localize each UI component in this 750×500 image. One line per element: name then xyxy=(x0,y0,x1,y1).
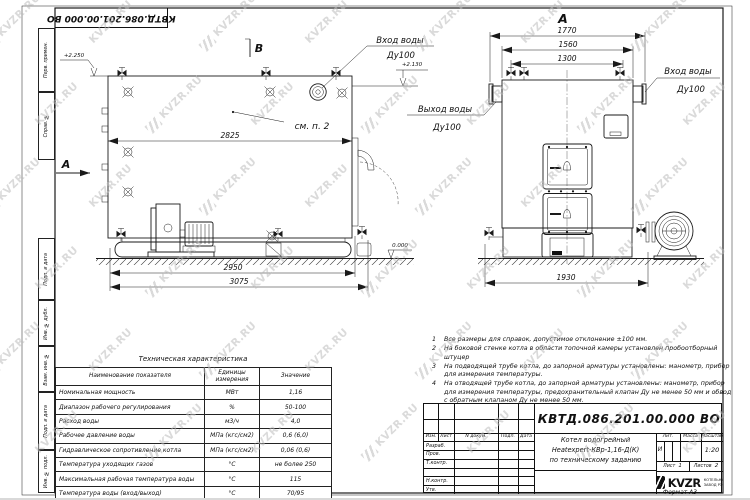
margin-label: Перв. примен. xyxy=(44,42,49,78)
sheet-label: Лист xyxy=(663,464,675,469)
side-dimensions xyxy=(56,39,434,291)
title-block: Изм. Лист N докум. Подп. Дата Разраб. Пр… xyxy=(423,403,722,493)
water-outlet-dn: Ду100 xyxy=(432,123,461,133)
elevation-zero-label: 0.000 xyxy=(392,243,408,249)
kvzr-logo-subtitle: КОТЕЛЬНЫЙ ЗАВОД РЭП xyxy=(704,478,723,487)
table-row: Гидравлическое сопротивление котлаМПа (к… xyxy=(56,443,332,457)
logo-sub-line2: ЗАВОД РЭП xyxy=(704,483,723,487)
water-inlet-label-front: Вход воды xyxy=(664,67,712,77)
margin-box-podp-data-1: Подп. и дата xyxy=(38,238,55,300)
view-b-arrow-label: В xyxy=(255,42,263,55)
kvzr-logo-icon xyxy=(656,476,665,489)
row-value: 1,16 xyxy=(260,386,332,400)
tech-header-name: Наименование показателя xyxy=(56,368,205,386)
see-item-note: см. п. 2 xyxy=(295,122,330,132)
table-row: Температура уходящих газов°Сне более 250 xyxy=(56,457,332,471)
row-name: Расход воды xyxy=(56,414,205,428)
row-value: 4,0 xyxy=(260,414,332,428)
sheets-label: Листов xyxy=(694,464,712,469)
row-name: Рабочее давление воды xyxy=(56,429,205,443)
margin-label: Подп. и дата xyxy=(44,253,49,286)
notes-list: 1Все размеры для справок, допустимое отк… xyxy=(432,336,732,406)
doc-number: КВТД.086.201.00.000 ВО xyxy=(534,404,723,433)
drawing-sheet: +2.250 +2.130 0.000 А В А Вход воды Ду10… xyxy=(0,0,750,500)
col-podp: Подп. xyxy=(498,434,518,439)
dim-3075: 3075 xyxy=(229,277,248,286)
note-number: 4 xyxy=(432,380,444,405)
fan-front xyxy=(654,212,696,260)
logo-sub-line1: КОТЕЛЬНЫЙ xyxy=(704,478,723,482)
note-item: 2На боковой стенке котла в области топоч… xyxy=(432,345,732,362)
water-outlet-label: Выход воды xyxy=(418,105,472,115)
dim-1770: 1770 xyxy=(557,26,576,35)
front-view xyxy=(478,68,704,266)
product-name-line2: Heatexpert-КВр-1,16-Д(К) xyxy=(535,446,656,456)
scale-label: Масштаб xyxy=(701,434,723,439)
sheets-value: 2 xyxy=(715,463,719,469)
row-unit: МПа (кгс/см2) xyxy=(205,443,260,457)
row-name: Диапазон рабочего регулирования xyxy=(56,400,205,414)
table-row: Максимальная рабочая температура воды°С1… xyxy=(56,472,332,486)
top-doc-number-text: КВТД.086.201.00.000 ВО xyxy=(47,13,176,23)
elevation-top-label: +2.250 xyxy=(64,53,85,59)
margin-box-inv-podl: Инв. № подл. xyxy=(38,450,55,493)
margin-box-perv-primen: Перв. примен. xyxy=(38,28,55,92)
row-value: 0,06 (0,6) xyxy=(260,443,332,457)
tech-header-unit: Единицы измерения xyxy=(205,368,260,386)
front-view-title: А xyxy=(557,11,568,26)
water-inlet-dn-side: Ду100 xyxy=(386,51,415,61)
margin-label: Справ. № xyxy=(44,114,49,137)
view-a-arrow-label: А xyxy=(61,158,71,171)
sheet-value: 1 xyxy=(678,463,682,469)
note-text: Все размеры для справок, допустимое откл… xyxy=(444,336,732,344)
margin-box-vzam-inv: Взам. инв. № xyxy=(38,346,55,392)
col-izm: Изм. xyxy=(424,434,438,439)
water-inlet-dn-front: Ду100 xyxy=(676,85,705,95)
row-value: 115 xyxy=(260,472,332,486)
row-value: не более 250 xyxy=(260,457,332,471)
margin-label: Инв. № подл. xyxy=(44,455,49,488)
product-name-line1: Котел водогрейный xyxy=(535,436,656,446)
margin-label: Подп. и дата xyxy=(44,405,49,438)
mass-label: Масса xyxy=(680,434,701,439)
row-tkontr: Т.контр. xyxy=(424,460,454,466)
row-value: 50-100 xyxy=(260,400,332,414)
note-number: 2 xyxy=(432,345,444,362)
table-row: Номинальная мощностьМВт1,16 xyxy=(56,386,332,400)
lit-value: И xyxy=(656,446,664,453)
row-unit: °С xyxy=(205,472,260,486)
sheets-cell: Листов 2 xyxy=(689,463,723,469)
lit-label: Лит. xyxy=(656,434,680,439)
row-unit: м3/ч xyxy=(205,414,260,428)
dim-1930: 1930 xyxy=(556,273,575,282)
note-item: 1Все размеры для справок, допустимое отк… xyxy=(432,336,732,344)
tech-characteristics: Техническая характеристика Наименование … xyxy=(55,355,331,500)
col-data: Дата xyxy=(518,434,534,439)
dim-2950: 2950 xyxy=(223,263,242,272)
col-ndoc: N докум. xyxy=(454,434,498,439)
format-note: Формат А3 xyxy=(638,489,722,496)
kvzr-logo-text: KVZR xyxy=(668,476,701,490)
margin-label: Инв. № дубл. xyxy=(44,307,49,340)
side-view xyxy=(96,68,414,266)
row-razrab: Разраб. xyxy=(424,443,454,449)
table-row: Диапазон рабочего регулирования%50-100 xyxy=(56,400,332,414)
tech-table-title: Техническая характеристика xyxy=(55,355,331,367)
margin-box-podp-data-2: Подп. и дата xyxy=(38,392,55,450)
note-text: На подводящей трубе котла, до запорной а… xyxy=(444,363,732,380)
scale-value: 1:20 xyxy=(701,446,723,454)
water-inlet-label-side: Вход воды xyxy=(376,36,424,46)
note-text: На боковой стенке котла в области топочн… xyxy=(444,345,732,362)
note-number: 3 xyxy=(432,363,444,380)
row-value: 0,6 (6,0) xyxy=(260,429,332,443)
table-row: Расход водым3/ч4,0 xyxy=(56,414,332,428)
table-row: Рабочее давление водыМПа (кгс/см2)0,6 (6… xyxy=(56,429,332,443)
dim-1560: 1560 xyxy=(558,40,577,49)
product-name-line3: по техническому заданию xyxy=(535,456,656,466)
row-name: Температура уходящих газов xyxy=(56,457,205,471)
elevation-inlet-label: +2.130 xyxy=(402,62,423,68)
margin-box-sprav: Справ. № xyxy=(38,92,55,160)
blower-side xyxy=(148,204,215,257)
row-unit: % xyxy=(205,400,260,414)
row-nkontr: Н.контр. xyxy=(424,478,454,484)
tech-table: Наименование показателя Единицы измерени… xyxy=(55,367,332,500)
tech-header-value: Значение xyxy=(260,368,332,386)
margin-box-inv-dubl: Инв. № дубл. xyxy=(38,300,55,346)
note-text: На отводящей трубе котла, до запорной ар… xyxy=(444,380,732,405)
dim-1300: 1300 xyxy=(557,54,576,63)
col-list: Лист xyxy=(438,434,454,439)
row-unit: °С xyxy=(205,457,260,471)
sheet-cell: Лист 1 xyxy=(656,463,689,469)
row-name: Гидравлическое сопротивление котла xyxy=(56,443,205,457)
row-unit: МПа (кгс/см2) xyxy=(205,429,260,443)
upper-door xyxy=(543,144,592,189)
dim-2825: 2825 xyxy=(220,131,239,140)
row-name: Номинальная мощность xyxy=(56,386,205,400)
row-unit: МВт xyxy=(205,386,260,400)
row-name: Максимальная рабочая температура воды xyxy=(56,472,205,486)
product-name: Котел водогрейный Heatexpert-КВр-1,16-Д(… xyxy=(534,433,656,494)
note-item: 4На отводящей трубе котла, до запорной а… xyxy=(432,380,732,405)
row-utv: Утв. xyxy=(424,487,454,493)
margin-label: Взам. инв. № xyxy=(44,353,49,386)
note-item: 3На подводящей трубе котла, до запорной … xyxy=(432,363,732,380)
note-number: 1 xyxy=(432,336,444,344)
top-inverted-doc-number: КВТД.086.201.00.000 ВО xyxy=(55,8,168,28)
row-prov: Пров. xyxy=(424,451,454,457)
